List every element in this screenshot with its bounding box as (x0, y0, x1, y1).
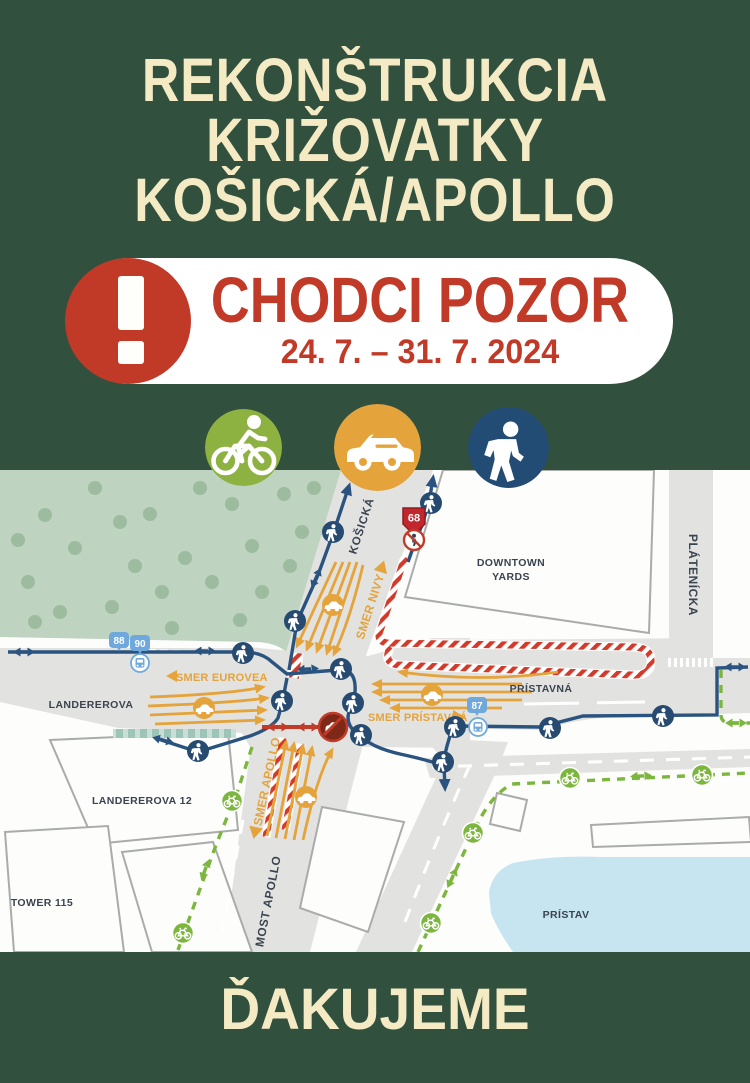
svg-text:LANDEREROVA: LANDEREROVA (49, 699, 134, 711)
svg-text:PLÁTENÍCKA: PLÁTENÍCKA (686, 534, 700, 616)
svg-text:68: 68 (408, 513, 420, 525)
svg-text:SMER EUROVEA: SMER EUROVEA (176, 672, 268, 684)
svg-text:LANDEREROVA 12: LANDEREROVA 12 (92, 795, 192, 807)
svg-text:90: 90 (134, 639, 146, 650)
svg-text:87: 87 (471, 701, 483, 712)
svg-text:PRÍSTAV: PRÍSTAV (543, 908, 590, 921)
svg-text:DOWNTOWN: DOWNTOWN (477, 557, 545, 569)
svg-text:88: 88 (113, 636, 125, 647)
svg-text:PRÍSTAVNÁ: PRÍSTAVNÁ (510, 682, 573, 695)
svg-text:TOWER 115: TOWER 115 (11, 897, 73, 909)
svg-text:YARDS: YARDS (492, 571, 530, 583)
